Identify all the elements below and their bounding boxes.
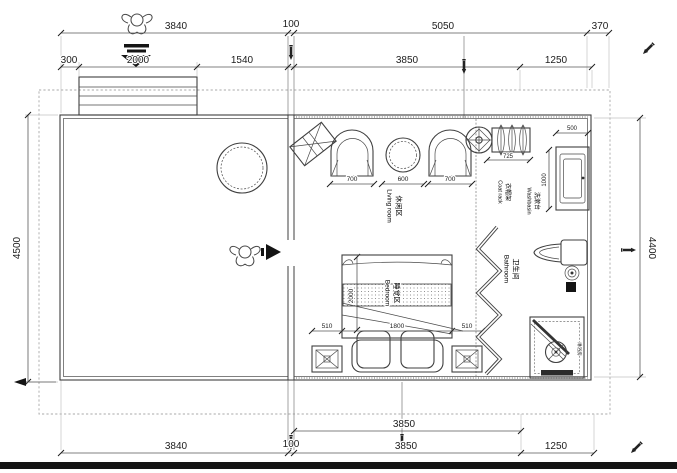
pen-marker-icon [289,42,655,455]
dim-bottom-3840: 3840 [165,441,188,452]
dim-chair-right: 700 [445,176,456,183]
dim-washbasin-width: 500 [567,126,578,132]
dim-coat-rack-width: 725 [503,154,514,160]
shower [530,317,584,378]
dim-top-5050: 5050 [432,21,455,32]
drain-icon [546,342,567,363]
bed-foot-bench [352,331,443,372]
dimension-lines [14,30,643,456]
svg-text:休闲区: 休闲区 [395,196,404,217]
living-room-label: 休闲区 Living room [386,189,404,223]
dim-bed-side-left: 510 [322,323,333,330]
dimension-labels: 3840 100 5050 370 300 2000 1540 3850 125… [12,19,657,452]
dim-top-100: 100 [283,19,300,30]
dim-left-4500: 4500 [12,236,23,259]
dim-bed-side-right: 510 [462,323,473,330]
dim-bottom-1250: 1250 [545,441,568,452]
person-icon [122,14,152,34]
dim-top-370: 370 [592,21,609,32]
armchair [429,130,471,176]
coat-rack-label: 衣帽架 Coat rack [497,180,513,204]
svg-text:Bedroom: Bedroom [384,280,391,306]
dim-top-1540: 1540 [231,55,254,66]
dim-bottom-100: 100 [283,439,300,450]
washbasin [556,147,589,210]
svg-text:Living room: Living room [386,189,393,223]
dim-bottom-3850: 3850 [395,441,418,452]
dim-washbasin-depth: 1000 [542,173,548,187]
person-icon [230,246,260,266]
dim-top-300: 300 [61,55,78,66]
svg-text:Coat rack: Coat rack [497,180,503,204]
dim-right-4400: 4400 [646,237,657,260]
hanger-icon [498,125,527,155]
svg-text:Bathroom: Bathroom [503,255,510,283]
dim-chair-left: 700 [347,176,358,183]
folding-partition [478,227,500,374]
page-bottom-rule [0,462,677,469]
coffee-table [386,138,420,172]
dim-top-3840: 3840 [165,21,188,32]
dim-top-1250: 1250 [545,55,568,66]
floor-plan-drawing: 3840 100 5050 370 300 2000 1540 3850 125… [0,0,677,473]
dim-bed-width: 1800 [390,323,405,330]
extension-lines [25,36,646,450]
svg-text:睡觉区: 睡觉区 [393,283,402,304]
shower-threshold [541,370,573,376]
toilet [534,240,587,292]
door-opening [286,240,296,266]
window-wall-hatch [296,117,588,378]
dim-top-2000: 2000 [127,55,150,66]
shower-label: 淋浴房 [576,342,583,356]
bathroom-label: 卫生间 Bathroom [503,255,521,283]
deck-round-table [217,143,267,193]
svg-text:衣帽架: 衣帽架 [504,183,512,201]
nightstand [452,346,482,372]
diamond-side-table [290,122,336,166]
dim-coffee-table: 600 [398,176,409,183]
left-arrow-icon [14,378,26,386]
svg-text:卫生间: 卫生间 [512,259,521,280]
dim-bottom-3850-inner: 3850 [393,419,416,430]
armchair [331,130,373,176]
entrance-steps [79,77,197,115]
right-arrow-icon [261,244,281,260]
nightstand [312,346,342,372]
ceiling-fan-icon [466,127,492,153]
coat-rack [492,125,530,155]
dim-top-3850: 3850 [396,55,419,66]
svg-text:洗漱台: 洗漱台 [533,192,541,210]
floor-plan-canvas: 3840 100 5050 370 300 2000 1540 3850 125… [0,0,677,473]
svg-text:Washbasin: Washbasin [526,187,532,214]
shower-door [533,320,569,354]
dim-bed-length: 2000 [348,288,355,303]
site-boundary [39,90,610,414]
washbasin-label: 洗漱台 Washbasin [526,187,542,214]
